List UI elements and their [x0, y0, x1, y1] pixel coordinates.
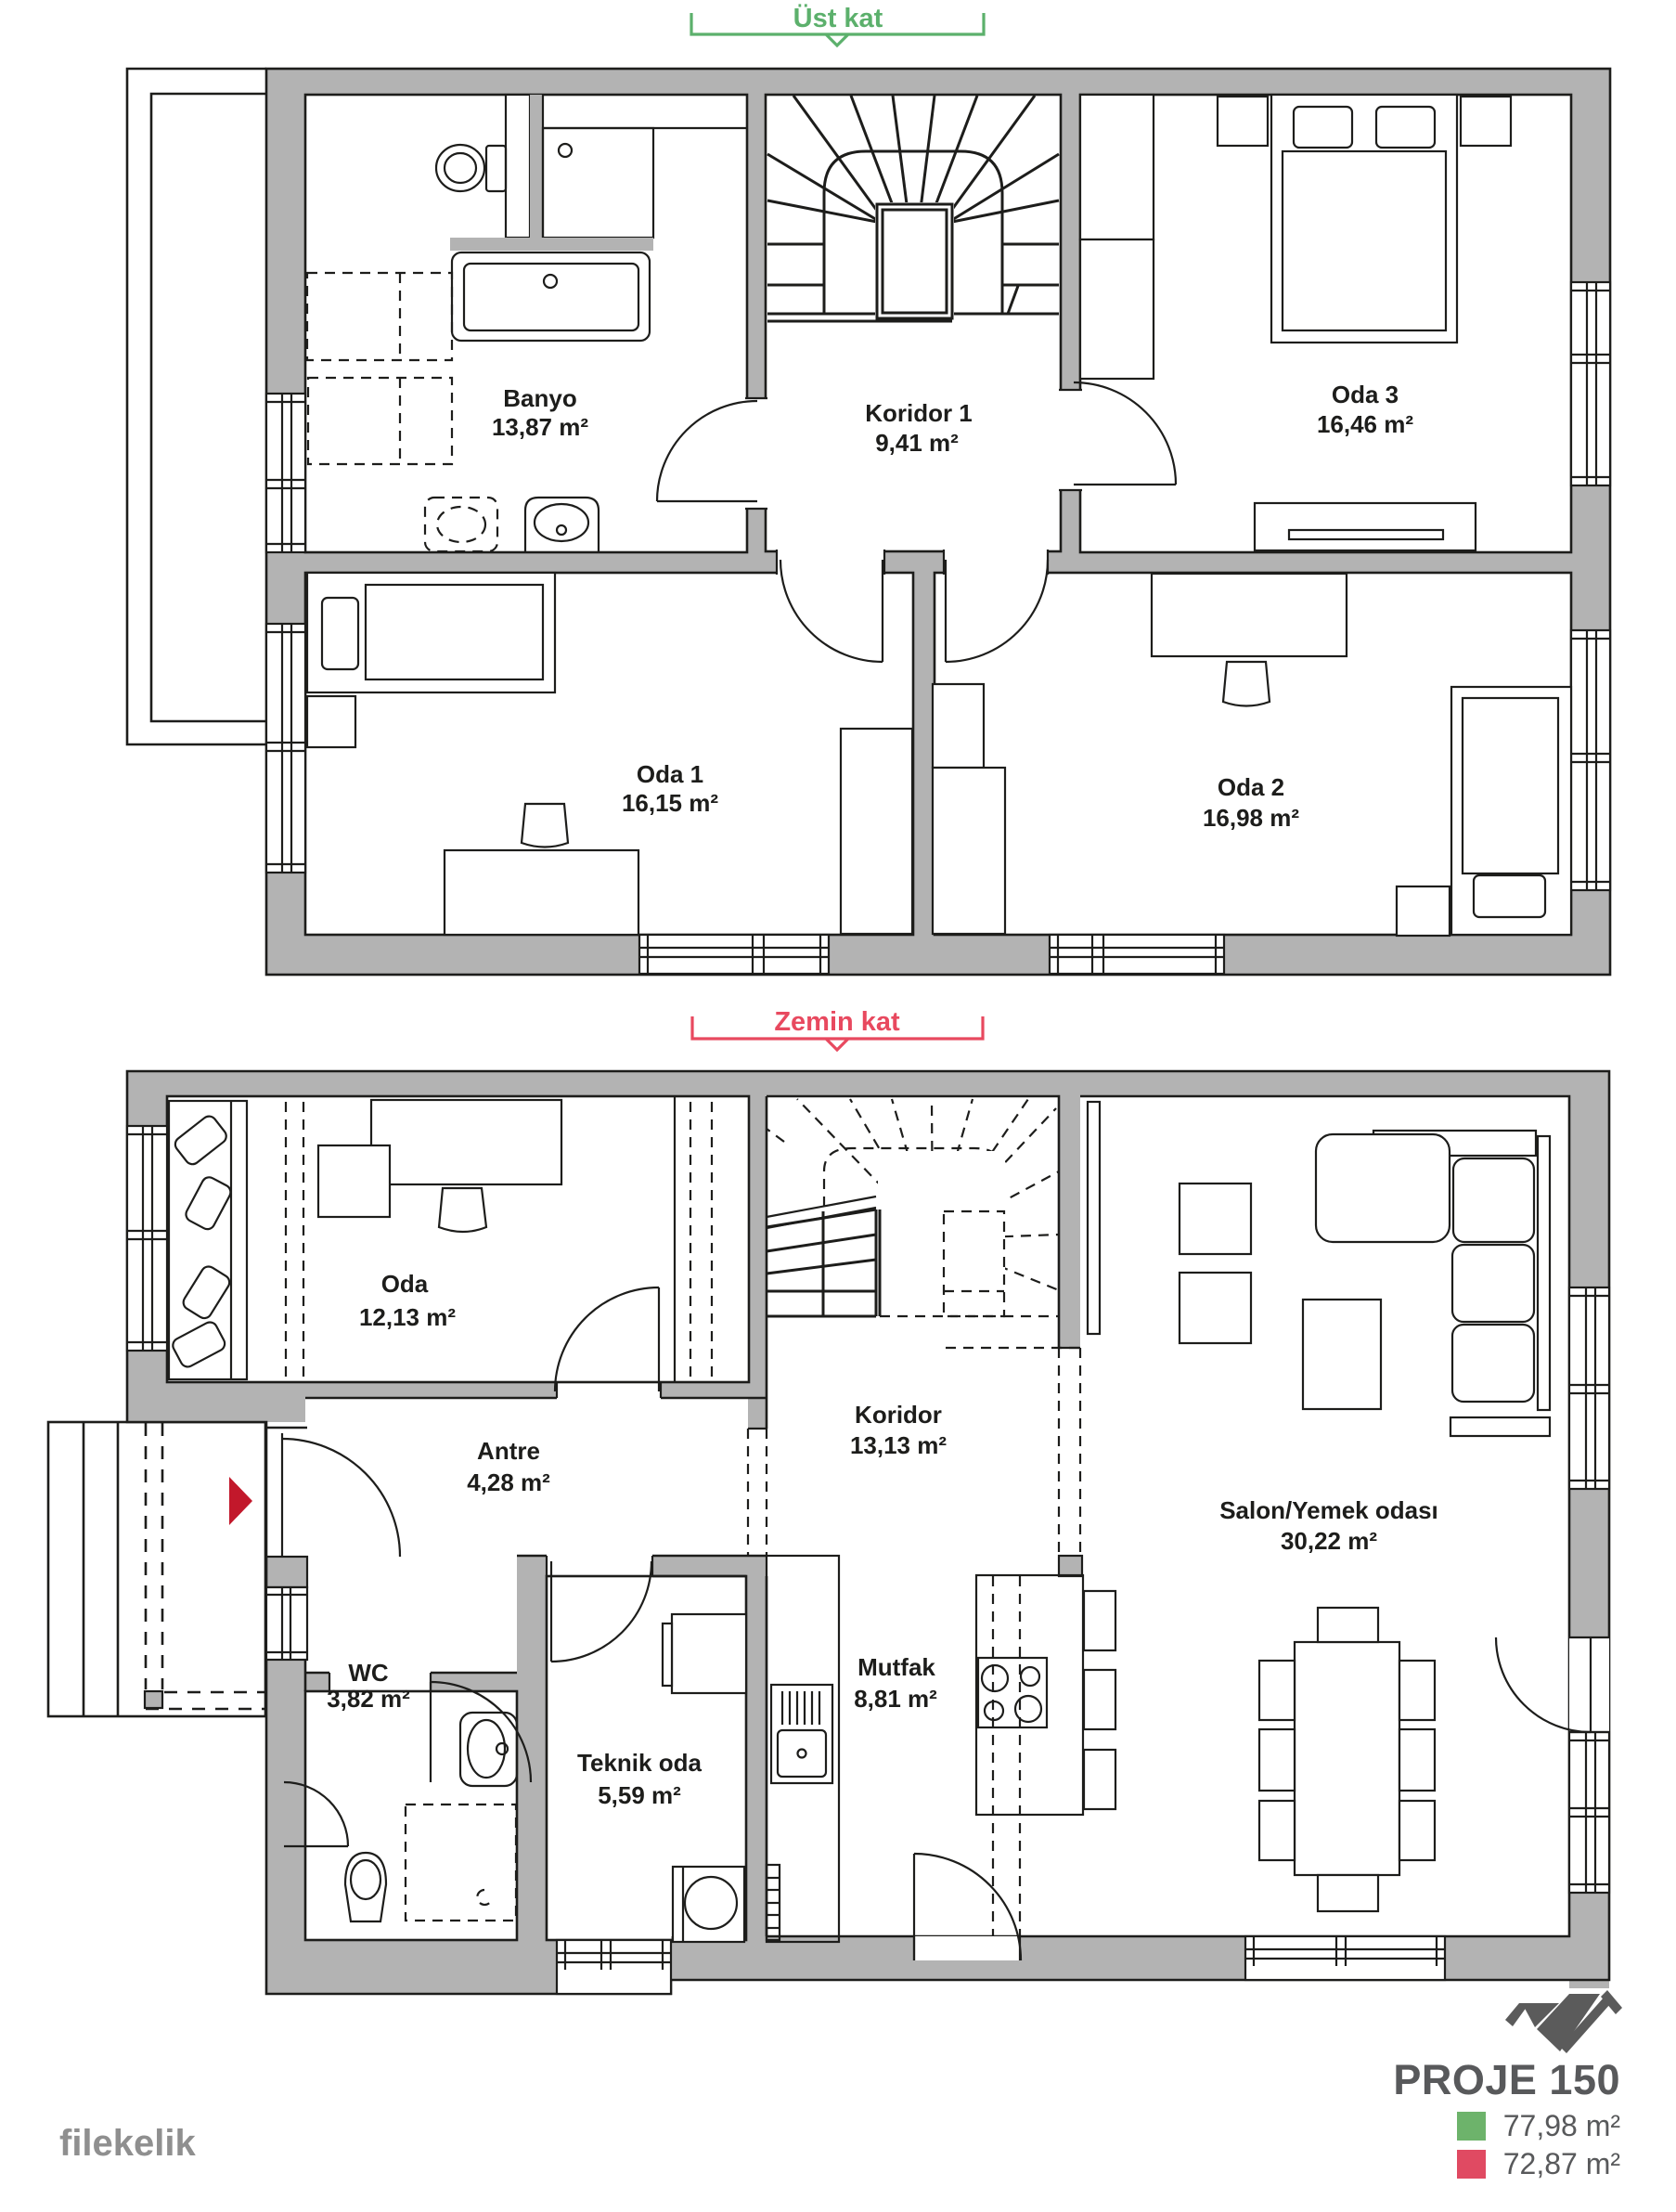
- svg-text:77,98 m²: 77,98 m²: [1503, 2109, 1621, 2142]
- svg-text:Teknik oda: Teknik oda: [577, 1749, 702, 1777]
- svg-text:Banyo: Banyo: [503, 384, 576, 412]
- svg-text:5,59 m²: 5,59 m²: [598, 1781, 681, 1809]
- svg-text:Salon/Yemek odası: Salon/Yemek odası: [1219, 1496, 1438, 1524]
- svg-text:13,13 m²: 13,13 m²: [850, 1431, 947, 1459]
- svg-text:Mutfak: Mutfak: [857, 1653, 935, 1681]
- svg-text:Zemin kat: Zemin kat: [774, 1007, 900, 1037]
- svg-text:Koridor 1: Koridor 1: [865, 399, 973, 427]
- svg-text:Koridor: Koridor: [855, 1401, 942, 1429]
- svg-text:Oda: Oda: [381, 1270, 429, 1298]
- svg-text:8,81 m²: 8,81 m²: [854, 1685, 937, 1713]
- svg-text:3,82 m²: 3,82 m²: [327, 1685, 410, 1713]
- svg-text:Antre: Antre: [477, 1437, 540, 1465]
- svg-text:9,41 m²: 9,41 m²: [875, 429, 959, 457]
- svg-text:filekelik: filekelik: [59, 2123, 197, 2164]
- svg-text:16,46 m²: 16,46 m²: [1317, 410, 1413, 438]
- svg-text:PROJE 150: PROJE 150: [1393, 2056, 1620, 2103]
- svg-text:4,28 m²: 4,28 m²: [467, 1468, 550, 1496]
- svg-text:Oda 2: Oda 2: [1218, 773, 1284, 801]
- svg-text:12,13 m²: 12,13 m²: [359, 1303, 456, 1331]
- svg-text:Oda 1: Oda 1: [637, 760, 703, 788]
- svg-text:13,87 m²: 13,87 m²: [492, 413, 588, 441]
- svg-text:WC: WC: [348, 1659, 389, 1687]
- svg-text:72,87 m²: 72,87 m²: [1503, 2147, 1621, 2180]
- svg-text:30,22 m²: 30,22 m²: [1281, 1527, 1377, 1555]
- svg-text:16,98 m²: 16,98 m²: [1203, 804, 1299, 832]
- svg-text:Üst kat: Üst kat: [793, 3, 883, 33]
- svg-text:16,15 m²: 16,15 m²: [622, 789, 718, 817]
- svg-text:Oda 3: Oda 3: [1332, 381, 1399, 408]
